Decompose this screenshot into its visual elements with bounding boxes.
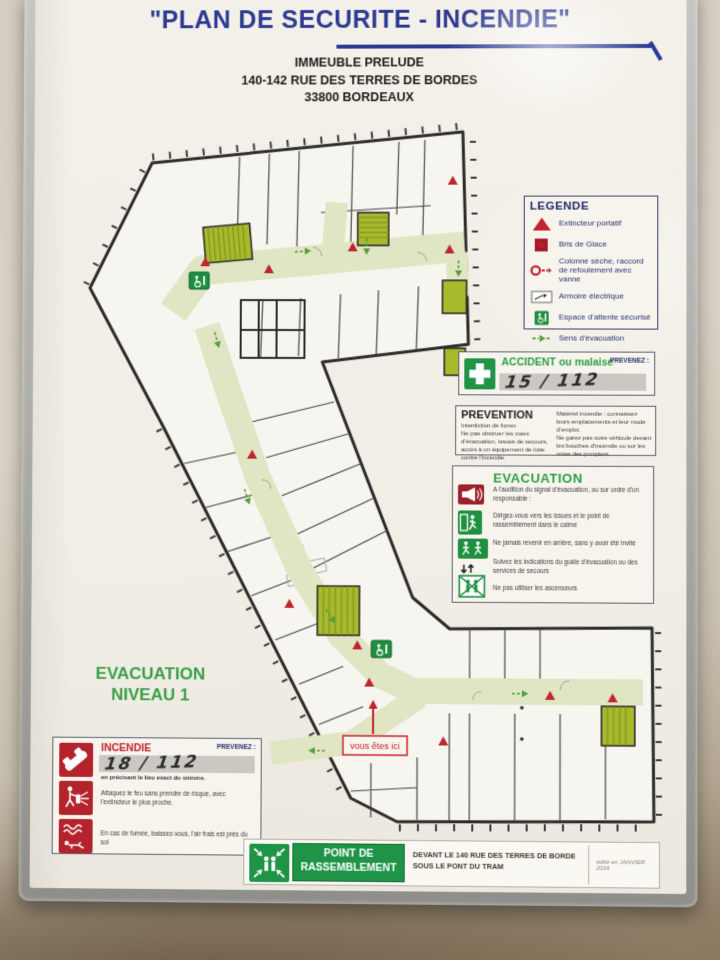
portable-extinguisher-icon xyxy=(530,216,553,232)
address-building: IMMEUBLE PRELUDE xyxy=(35,54,686,73)
fire-instruction: Attaquez le feu sans prendre de risque, … xyxy=(101,790,253,809)
level-label: EVACUATION NIVEAU 1 xyxy=(51,663,251,707)
accident-box: ACCIDENT ou malaise PREVENEZ : 15 / 112 xyxy=(458,351,655,395)
legend-item: Sens d'évacuation xyxy=(530,330,653,346)
title-underline xyxy=(336,44,652,48)
evacuation-box: EVACUATION A l'audition du signal d'évac… xyxy=(452,465,654,604)
evacuation-item: Dirigez-vous vers les issues et le point… xyxy=(493,513,646,531)
evacuation-item: Ne jamais revenir en arrière, sans y avo… xyxy=(493,540,646,549)
legend-item: Espace d'attente sécurisé xyxy=(530,309,653,326)
alarm-icon xyxy=(458,484,484,509)
wall-photo-background: { "header": { "title": "\"PLAN DE SECURI… xyxy=(0,0,720,960)
plan-frame: "PLAN DE SECURITE - INCENDIE" IMMEUBLE P… xyxy=(19,0,698,907)
assembly-point-bar: POINT DE RASSEMBLEMENT DEVANT LE 140 RUE… xyxy=(243,839,660,889)
secure-waiting-area-icon xyxy=(530,309,553,326)
page-title: "PLAN DE SECURITE - INCENDIE" xyxy=(35,5,686,35)
fire-note: en précisant le lieu exact du sinistre. xyxy=(101,775,205,782)
svg-text:vous êtes ici: vous êtes ici xyxy=(350,741,400,751)
evacuation-item: Suivez les indications du guide d'évacua… xyxy=(493,559,646,577)
emergency-exit-icon xyxy=(458,510,482,539)
building-address: IMMEUBLE PRELUDE 140-142 RUE DES TERRES … xyxy=(35,54,687,107)
safety-poster: "PLAN DE SECURITE - INCENDIE" IMMEUBLE P… xyxy=(30,0,687,894)
evacuation-title: EVACUATION xyxy=(493,470,583,485)
accident-title: ACCIDENT ou malaise xyxy=(501,356,613,368)
evacuation-direction-icon xyxy=(530,330,553,346)
secure-waiting-area-marker xyxy=(189,272,209,289)
dry-riser-icon xyxy=(530,262,553,278)
prevention-text-left: Interdiction de fumer. Ne pas obstruer l… xyxy=(461,422,549,463)
fire-title: INCENDIE xyxy=(101,742,151,754)
legend-item: Colonne sèche, raccord de refoulement av… xyxy=(530,256,653,284)
evacuation-item: A l'audition du signal d'évacuation, ou … xyxy=(493,487,646,505)
legend-title: LEGENDE xyxy=(530,201,652,213)
accident-phone-number: 15 / 112 xyxy=(504,372,601,392)
smoke-crawl-icon xyxy=(59,819,93,858)
divider xyxy=(588,846,589,884)
first-aid-cross-icon xyxy=(464,358,495,394)
fire-phone-number: 18 / 112 xyxy=(103,754,199,774)
prevention-text-right: Matériel incendie : connaissez leurs emp… xyxy=(556,411,652,460)
secure-waiting-area-marker xyxy=(371,640,391,657)
prevention-title: PREVENTION xyxy=(461,409,533,421)
assembly-point-location: DEVANT LE 140 RUE DES TERRES DE BORDE SO… xyxy=(413,850,584,874)
prevention-box: PREVENTION Interdiction de fumer. Ne pas… xyxy=(455,405,656,456)
legend-item: Extincteur portatif xyxy=(530,216,653,232)
edition-date: édité en JANVIER 2016 xyxy=(596,860,659,873)
extinguisher-attack-icon xyxy=(59,781,93,820)
fire-instructions-box: INCENDIE PREVENEZ : 18 / 112 en précisan… xyxy=(52,737,262,856)
legend-box: LEGENDE Extincteur portatif Bris de Glac… xyxy=(524,196,659,330)
break-glass-icon xyxy=(530,236,553,252)
assembly-point-icon xyxy=(248,843,290,889)
electrical-cabinet-icon xyxy=(530,289,553,305)
assembly-point-label: POINT DE RASSEMBLEMENT xyxy=(292,843,405,882)
address-city: 33800 BORDEAUX xyxy=(35,89,687,107)
legend-item: Bris de Glace xyxy=(530,236,653,252)
address-street: 140-142 RUE DES TERRES DE BORDES xyxy=(35,71,687,90)
evacuation-group-icon xyxy=(458,539,488,564)
fire-instruction: En cas de fumée, baissez-vous, l'air fra… xyxy=(101,830,253,849)
fire-phone-icon xyxy=(59,743,93,782)
prevenez-label: PREVENEZ : xyxy=(610,358,649,365)
legend-item: Armoire électrique xyxy=(530,289,653,305)
prevenez-label: PREVENEZ : xyxy=(217,744,256,751)
evacuation-item: Ne pas utiliser les ascenseurs xyxy=(493,585,646,594)
no-elevator-icon xyxy=(458,563,486,604)
